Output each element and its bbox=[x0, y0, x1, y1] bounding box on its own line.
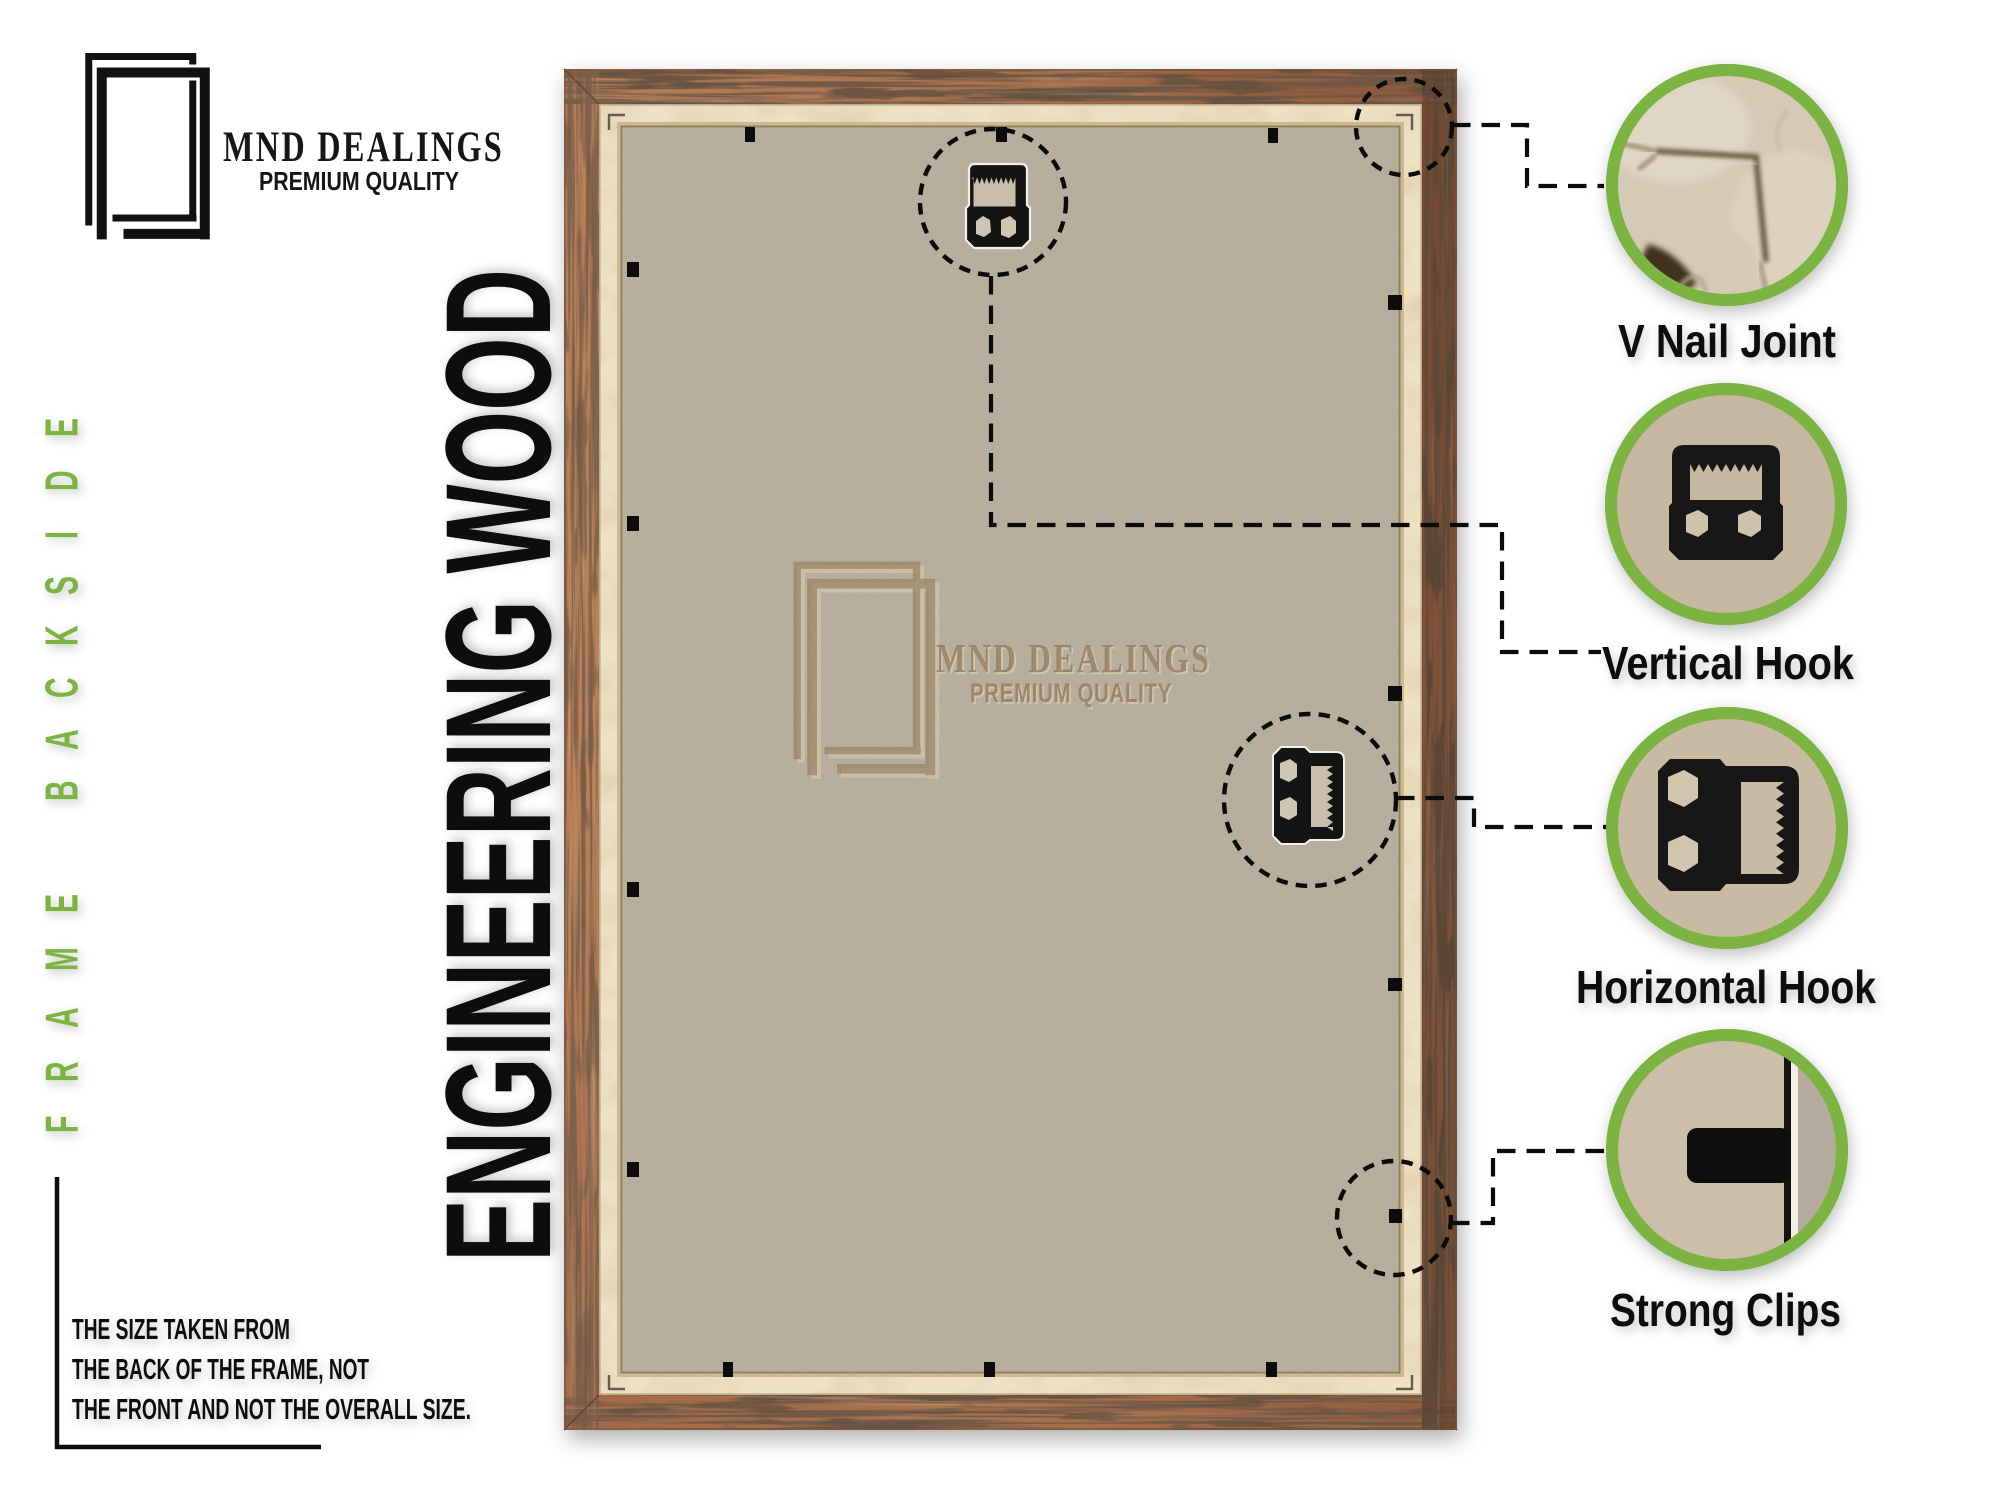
svg-text:V Nail Joint: V Nail Joint bbox=[1618, 315, 1836, 367]
svg-text:THE BACK OF THE FRAME, NOT: THE BACK OF THE FRAME, NOT bbox=[72, 1354, 369, 1386]
svg-text:E: E bbox=[37, 418, 89, 437]
svg-text:B: B bbox=[37, 780, 89, 801]
svg-text:MND DEALINGS: MND DEALINGS bbox=[223, 124, 504, 171]
svg-text:Vertical Hook: Vertical Hook bbox=[1602, 637, 1854, 689]
svg-text:Strong Clips: Strong Clips bbox=[1610, 1284, 1841, 1336]
svg-text:S: S bbox=[37, 576, 89, 595]
svg-text:E: E bbox=[37, 894, 89, 913]
svg-text:PREMIUM QUALITY: PREMIUM QUALITY bbox=[259, 166, 459, 196]
svg-text:PREMIUM QUALITY: PREMIUM QUALITY bbox=[970, 678, 1172, 708]
svg-text:A: A bbox=[37, 1007, 89, 1028]
svg-text:C: C bbox=[37, 677, 89, 698]
svg-text:Horizontal Hook: Horizontal Hook bbox=[1576, 961, 1876, 1013]
svg-text:M: M bbox=[37, 947, 89, 971]
svg-text:D: D bbox=[37, 470, 89, 491]
svg-text:K: K bbox=[37, 625, 89, 646]
svg-text:THE FRONT AND NOT THE OVERALL: THE FRONT AND NOT THE OVERALL SIZE. bbox=[72, 1394, 471, 1426]
svg-text:R: R bbox=[37, 1061, 89, 1082]
svg-text:F: F bbox=[37, 1116, 89, 1133]
svg-text:ENGINEERING WOOD: ENGINEERING WOOD bbox=[414, 269, 582, 1262]
svg-text:MND DEALINGS: MND DEALINGS bbox=[936, 635, 1211, 681]
svg-text:THE SIZE TAKEN FROM: THE SIZE TAKEN FROM bbox=[72, 1314, 290, 1346]
svg-text:A: A bbox=[37, 729, 89, 750]
svg-text:I: I bbox=[37, 531, 89, 539]
